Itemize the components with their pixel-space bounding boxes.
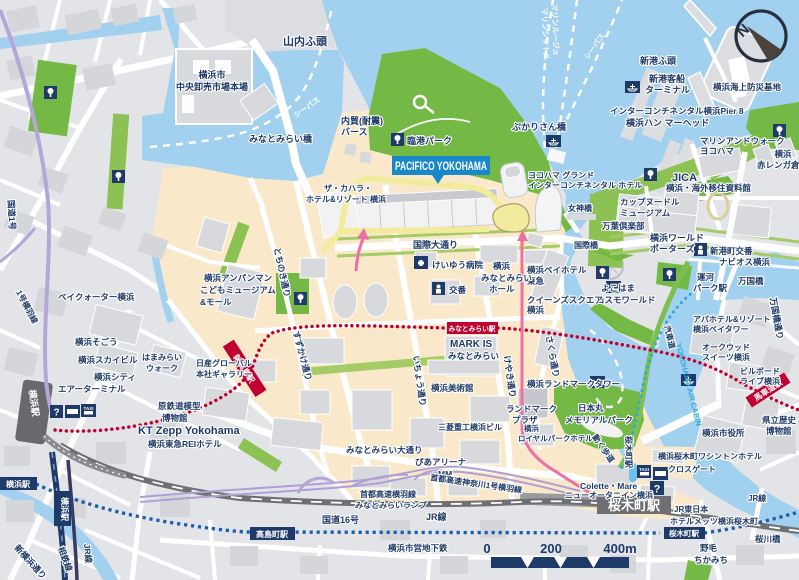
- svg-text:首都高速横羽線: 首都高速横羽線: [360, 489, 416, 499]
- svg-text:横浜: 横浜: [492, 261, 511, 271]
- svg-text:ホテル&リゾート 横浜: ホテル&リゾート 横浜: [306, 194, 386, 204]
- svg-text:国際橋: 国際橋: [574, 240, 599, 250]
- svg-text:女神橋: 女神橋: [568, 203, 593, 213]
- svg-text:はまみらい: はまみらい: [142, 353, 182, 362]
- svg-text:横浜そごう: 横浜そごう: [74, 337, 118, 347]
- svg-text:みなとみらい: みなとみらい: [448, 351, 499, 361]
- svg-text:0: 0: [483, 541, 490, 556]
- svg-text:ザ・カハラ・: ザ・カハラ・: [324, 184, 372, 193]
- svg-text:けいゆう病院: けいゆう病院: [432, 260, 484, 270]
- svg-text:博物館: 博物館: [766, 426, 792, 436]
- svg-text:KT Zepp Yokohama: KT Zepp Yokohama: [138, 425, 241, 437]
- svg-text:原鉄道模型: 原鉄道模型: [158, 401, 201, 411]
- svg-text:エアーターミナル: エアーターミナル: [58, 384, 126, 394]
- svg-text:ぷかりさん橋: ぷかりさん橋: [511, 121, 567, 132]
- svg-text:横浜海上防災基地: 横浜海上防災基地: [712, 82, 782, 92]
- svg-text:交番: 交番: [449, 285, 467, 295]
- svg-text:赤レンガ倉庫: 赤レンガ倉庫: [757, 160, 799, 170]
- svg-text:みなとみらい: みなとみらい: [481, 273, 532, 283]
- svg-text:横浜アンパンマン: 横浜アンパンマン: [203, 273, 273, 283]
- svg-text:ヨコハマ グランド: ヨコハマ グランド: [528, 170, 594, 180]
- svg-text:万葉倶楽部: 万葉倶楽部: [601, 221, 645, 231]
- svg-text:桜川橋: 桜川橋: [755, 534, 781, 544]
- svg-text:県立歴史: 県立歴史: [762, 415, 797, 425]
- svg-text:横浜・海外移住資料館: 横浜・海外移住資料館: [665, 183, 752, 193]
- svg-text:?: ?: [654, 484, 661, 496]
- svg-text:ターミナル: ターミナル: [645, 84, 690, 95]
- svg-text:桜木町駅: 桜木町駅: [669, 528, 699, 538]
- svg-text:200: 200: [540, 541, 562, 556]
- svg-text:インターコンチネンタル横浜Pier 8: インターコンチネンタル横浜Pier 8: [610, 106, 744, 116]
- svg-text:メモリアルパーク: メモリアルパーク: [565, 415, 633, 425]
- svg-text:横浜: 横浜: [773, 149, 792, 159]
- svg-text:こどもミュージアム: こどもミュージアム: [200, 285, 276, 295]
- svg-text:横浜スカイビル: 横浜スカイビル: [77, 355, 138, 365]
- svg-text:ニューオータニイン横浜: ニューオータニイン横浜: [565, 490, 653, 500]
- svg-text:PACIFICO YOKOHAMA: PACIFICO YOKOHAMA: [395, 161, 487, 173]
- svg-text:横浜市役所: 横浜市役所: [701, 428, 745, 438]
- svg-text:JR線: JR線: [426, 511, 447, 522]
- svg-text:横浜: 横浜: [526, 305, 545, 315]
- svg-text:スイーツ横浜: スイーツ横浜: [702, 352, 750, 362]
- svg-text:新港ふ頭: 新港ふ頭: [640, 55, 677, 66]
- svg-text:国道16号: 国道16号: [322, 514, 359, 525]
- svg-text:横浜シティ: 横浜シティ: [93, 372, 136, 382]
- svg-text:ホール: ホール: [489, 284, 515, 294]
- svg-text:横浜ワールド: 横浜ワールド: [650, 232, 704, 243]
- svg-text:日本丸: 日本丸: [578, 403, 604, 413]
- svg-text:野毛: 野毛: [700, 543, 718, 553]
- svg-text:博物館: 博物館: [162, 413, 188, 423]
- svg-text:ロイヤルパークホテル: ロイヤルパークホテル: [518, 433, 593, 443]
- svg-text:カップヌードル: カップヌードル: [620, 197, 680, 207]
- svg-text:横浜ベイタワー: 横浜ベイタワー: [693, 324, 749, 334]
- svg-text:コスモワールド: コスモワールド: [596, 295, 656, 305]
- svg-text:Colette・Mare: Colette・Mare: [580, 481, 637, 491]
- svg-text:クロスゲート: クロスゲート: [668, 464, 716, 474]
- svg-text:ミュージアム: ミュージアム: [620, 208, 671, 218]
- svg-text:山内ふ頭: 山内ふ頭: [283, 34, 328, 48]
- svg-text:マリンルージュ: マリンルージュ: [550, 4, 561, 56]
- svg-text:新港客船: 新港客船: [649, 73, 685, 84]
- svg-text:中央卸売市場本場: 中央卸売市場本場: [176, 81, 248, 92]
- svg-text:国際大通り: 国際大通り: [413, 239, 458, 250]
- svg-text:&モール: &モール: [200, 297, 232, 307]
- svg-text:ポーターズ: ポーターズ: [650, 243, 695, 254]
- svg-text:JR線: JR線: [748, 493, 766, 503]
- svg-text:ヨコハマ: ヨコハマ: [700, 146, 735, 156]
- svg-text:JR線: JR線: [82, 543, 94, 564]
- svg-text:横浜東急REIホテル: 横浜東急REIホテル: [147, 439, 222, 449]
- svg-text:クイーンズスクエア: クイーンズスクエア: [527, 295, 603, 305]
- svg-text:三菱重工横浜ビル: 三菱重工横浜ビル: [438, 422, 502, 432]
- svg-text:バース: バース: [341, 127, 368, 137]
- svg-text:横浜駅: 横浜駅: [60, 497, 70, 522]
- svg-text:横浜ランドマークタワー: 横浜ランドマークタワー: [526, 379, 620, 389]
- svg-text:みなとみらいランプ: みなとみらいランプ: [355, 500, 428, 510]
- svg-text:インターコンチネンタル ホテル: インターコンチネンタル ホテル: [528, 180, 642, 190]
- svg-text:横浜ベイホテル: 横浜ベイホテル: [526, 265, 587, 275]
- svg-text:国道1号: 国道1号: [6, 200, 18, 231]
- svg-text:ライブ横浜: ライブ横浜: [740, 376, 780, 386]
- svg-text:みなとみらい大通り: みなとみらい大通り: [346, 445, 423, 455]
- svg-text:横浜ハン マーヘッド: 横浜ハン マーヘッド: [626, 117, 710, 128]
- svg-text:新港町交番: 新港町交番: [710, 246, 753, 256]
- svg-text:横浜市: 横浜市: [198, 69, 225, 80]
- svg-text:横浜: 横浜: [524, 423, 539, 433]
- svg-text:みなとみらい駅: みなとみらい駅: [449, 324, 497, 333]
- svg-text:ナビオス横浜: ナビオス横浜: [719, 257, 771, 267]
- svg-text:臨港パーク: 臨港パーク: [407, 135, 452, 146]
- svg-text:運河: 運河: [697, 272, 715, 282]
- svg-text:400m: 400m: [603, 541, 636, 556]
- svg-text:TAXI: TAXI: [84, 406, 94, 411]
- svg-text:万国橋: 万国橋: [737, 276, 764, 286]
- svg-text:横浜駅: 横浜駅: [6, 479, 31, 489]
- svg-text:本社ギャラリー: 本社ギャラリー: [195, 369, 252, 379]
- svg-text:ビルボード: ビルボード: [740, 366, 780, 376]
- svg-text:横浜市営地下鉄: 横浜市営地下鉄: [387, 543, 448, 553]
- svg-text:ちかみち: ちかみち: [694, 555, 728, 565]
- svg-text:横浜美術館: 横浜美術館: [430, 383, 474, 393]
- svg-text:ランドマーク: ランドマーク: [506, 404, 557, 414]
- svg-text:よこはま: よこはま: [601, 283, 635, 293]
- svg-text:横浜桜木町ワシントンホテル: 横浜桜木町ワシントンホテル: [658, 451, 762, 461]
- svg-text:桜木町駅: 桜木町駅: [608, 498, 661, 513]
- svg-text:JR東日本: JR東日本: [674, 504, 708, 514]
- svg-text:ベイクォーター横浜: ベイクォーター横浜: [58, 292, 135, 302]
- svg-text:パーク駅: パーク駅: [693, 283, 728, 293]
- svg-text:日産グローバル: 日産グローバル: [196, 358, 252, 368]
- svg-text:ウォーク: ウォーク: [146, 363, 178, 373]
- svg-text:アパホテル&リゾート: アパホテル&リゾート: [693, 314, 771, 324]
- svg-text:TAXI: TAXI: [639, 467, 649, 472]
- svg-text:みなとみらい橋: みなとみらい橋: [249, 133, 313, 144]
- svg-text:オークウッド: オークウッド: [702, 342, 750, 352]
- svg-text:マリンシャトル: マリンシャトル: [540, 8, 551, 61]
- svg-text:ホテルメッツ横浜桜木町: ホテルメッツ横浜桜木町: [670, 516, 758, 526]
- svg-text:マリンアンドウォーク: マリンアンドウォーク: [700, 136, 785, 146]
- svg-text:内貿(耐震): 内貿(耐震): [341, 115, 383, 126]
- svg-text:高島町駅: 高島町駅: [256, 529, 289, 539]
- svg-text:?: ?: [53, 408, 59, 419]
- svg-text:MARK IS: MARK IS: [450, 339, 493, 350]
- svg-text:桜木町駅: 桜木町駅: [624, 436, 634, 469]
- svg-text:ぴあアリーナ: ぴあアリーナ: [415, 457, 467, 467]
